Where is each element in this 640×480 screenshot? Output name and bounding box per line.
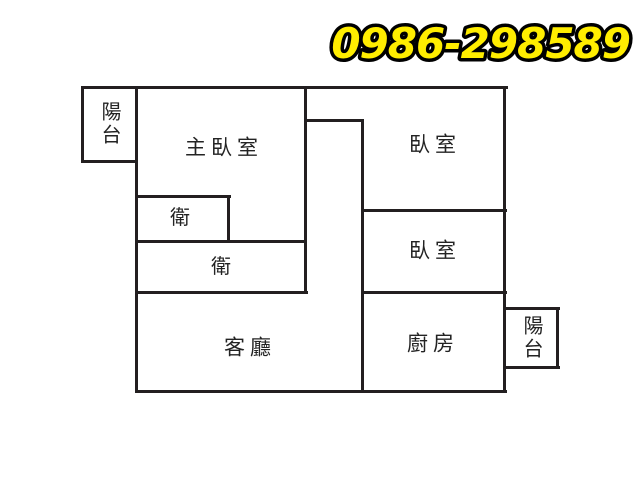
wall-segment bbox=[81, 86, 84, 163]
room-label-bathroom-large: 衛 bbox=[211, 256, 231, 278]
wall-segment bbox=[504, 307, 560, 310]
wall-segment bbox=[556, 307, 559, 369]
room-label-balcony-right: 陽台 bbox=[520, 315, 542, 361]
wall-segment bbox=[361, 119, 364, 393]
wall-segment bbox=[361, 291, 507, 294]
wall-segment bbox=[135, 86, 138, 393]
floor-plan-page: 0986-298589 陽台 主臥室 臥室 衛 衛 臥室 客廳 廚房 陽台 bbox=[0, 0, 640, 480]
room-label-master-bedroom: 主臥室 bbox=[185, 136, 263, 159]
wall-segment bbox=[304, 119, 364, 122]
wall-segment bbox=[361, 209, 507, 212]
wall-segment bbox=[81, 86, 508, 89]
room-label-bedroom-middle-right: 臥室 bbox=[409, 239, 461, 262]
room-label-bathroom-small: 衛 bbox=[170, 207, 190, 229]
wall-segment bbox=[135, 195, 231, 198]
room-label-bedroom-top-right: 臥室 bbox=[409, 133, 461, 156]
room-label-kitchen: 廚房 bbox=[407, 332, 459, 355]
wall-segment bbox=[135, 390, 507, 393]
floor-plan-diagram: 陽台 主臥室 臥室 衛 衛 臥室 客廳 廚房 陽台 bbox=[0, 0, 640, 480]
wall-segment bbox=[304, 86, 307, 294]
wall-segment bbox=[135, 291, 308, 294]
room-label-balcony-top-left: 陽台 bbox=[98, 101, 120, 147]
wall-segment bbox=[135, 240, 307, 243]
wall-segment bbox=[503, 86, 506, 393]
wall-segment bbox=[504, 366, 560, 369]
room-label-living-room: 客廳 bbox=[224, 336, 276, 359]
wall-segment bbox=[227, 195, 230, 243]
wall-segment bbox=[81, 160, 138, 163]
